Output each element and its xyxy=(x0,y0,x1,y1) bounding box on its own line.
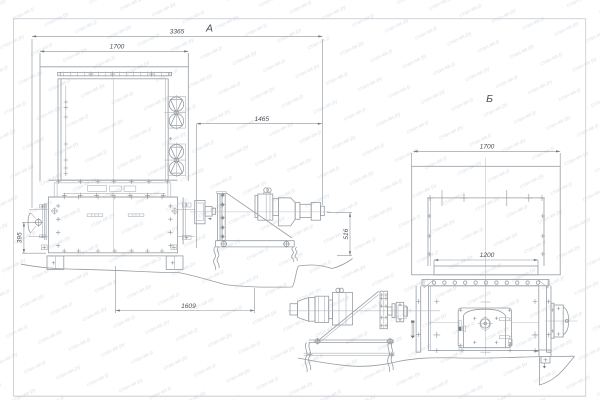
svg-text:1609: 1609 xyxy=(181,303,196,310)
svg-text:3365: 3365 xyxy=(170,28,185,35)
svg-text:Б: Б xyxy=(486,93,493,105)
svg-text:1700: 1700 xyxy=(110,43,125,50)
svg-text:516: 516 xyxy=(343,228,350,239)
svg-text:395: 395 xyxy=(17,232,24,243)
svg-text:1700: 1700 xyxy=(480,144,495,151)
svg-text:1200: 1200 xyxy=(480,252,495,259)
svg-text:А: А xyxy=(205,23,213,35)
svg-text:1465: 1465 xyxy=(254,116,269,123)
